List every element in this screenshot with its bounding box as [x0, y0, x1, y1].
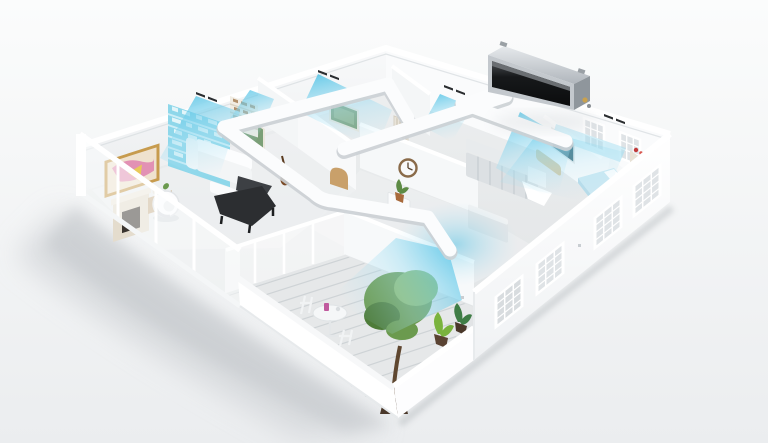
- corner-post-west: [76, 134, 86, 196]
- unit-shadow: [493, 114, 597, 130]
- wall-clock: [400, 160, 417, 177]
- unit-pipe-fitting-1: [582, 97, 587, 102]
- floorplan-illustration: [0, 0, 768, 443]
- pink-cup: [324, 303, 329, 311]
- wall-vent-dot-1: [461, 296, 464, 299]
- wall-vent-dot-2: [578, 244, 581, 247]
- product-render-stage: [0, 0, 768, 443]
- unit-pipe-fitting-2: [587, 104, 591, 108]
